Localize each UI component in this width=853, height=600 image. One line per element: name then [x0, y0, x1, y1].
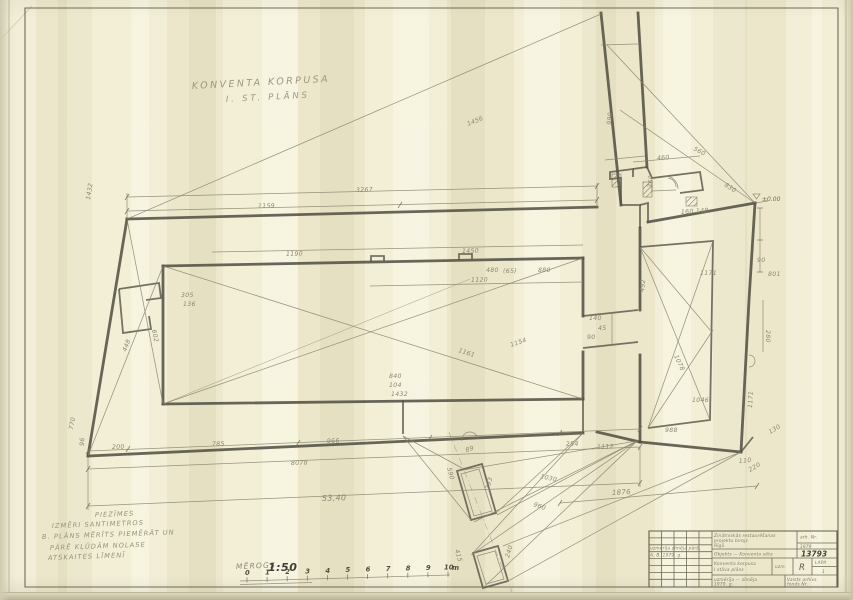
dimension-label: 280 — [764, 330, 771, 343]
ruler-number: 2 — [285, 568, 290, 576]
project-number: 13793 — [801, 550, 827, 559]
scale-unit: m — [452, 564, 459, 572]
sheet-number: 1 — [822, 569, 825, 575]
ruler-number: 4 — [325, 567, 330, 575]
dimension-label: 602 — [150, 329, 159, 343]
dimension-label: 90 — [587, 334, 595, 341]
drawing-line2: I stāva plāns — [714, 567, 744, 573]
note-line1: PIEZĪMES — [95, 509, 135, 519]
dimension-label: 160 — [681, 208, 694, 216]
ruler-number: 9 — [426, 564, 431, 572]
dimension-label: 3267 — [356, 186, 373, 194]
dimension-label: 1154 — [509, 337, 527, 349]
org-line3: Rīgā — [714, 543, 725, 549]
dimension-label: 45 — [598, 325, 606, 332]
dimension-label: 801 — [768, 271, 781, 278]
sig-row1: uzmērīja zīmēja pārb. — [650, 546, 701, 552]
building-walls — [88, 13, 755, 456]
dimension-label: 460 — [657, 154, 670, 162]
dimension-label: 1171 — [700, 270, 717, 277]
dimension-label: 1030 — [540, 473, 558, 484]
dimension-label: 8078 — [291, 459, 308, 467]
dimension-label: 590 — [445, 467, 455, 481]
ruler-number: 8 — [406, 565, 411, 573]
dimension-label: 990 — [606, 112, 614, 125]
border-frame — [25, 8, 838, 587]
ruler-number: 5 — [346, 566, 351, 574]
dimension-label: 966 — [327, 438, 340, 445]
level-mark-label: ±0.00 — [762, 196, 781, 203]
footer-right2: fonds Nr. — [787, 582, 808, 588]
dimension-label: 1112 — [597, 443, 614, 451]
dimension-label: 1456 — [466, 115, 484, 128]
dimension-label: (65) — [503, 268, 517, 275]
dimension-label: 830 — [723, 182, 737, 195]
ruler-number: 6 — [366, 566, 371, 574]
scale-ratio: 1:50 — [268, 561, 297, 574]
dimension-label: 96 — [79, 437, 86, 446]
sheet-label: LAPA — [815, 560, 826, 566]
object-line: Objekts — Konventa sēta — [714, 552, 773, 558]
dimension-label: 480 — [486, 267, 499, 274]
plan-title-line2: I. ST. PLĀNS — [226, 90, 310, 105]
dimension-label: 1161 — [457, 347, 475, 359]
dimension-label: 360 — [647, 175, 655, 188]
dimension-label: 254 — [566, 441, 579, 448]
series-letter: R — [799, 563, 805, 573]
dimension-label: 960 — [532, 501, 546, 512]
dimension-label: 492 — [639, 279, 647, 292]
dimension-label: 53,40 — [322, 493, 347, 503]
stair-detail — [610, 167, 703, 228]
dimension-label: 305 — [181, 292, 194, 299]
dimension-label: 1432 — [85, 182, 95, 200]
dimension-label: 770 — [68, 417, 77, 431]
west-annex — [119, 283, 161, 333]
note-line2: IZMĒRI SANTIMETROS — [52, 518, 144, 530]
ruler-number: 7 — [386, 565, 391, 573]
dimension-label: 1450 — [462, 248, 479, 255]
dimension-labels: 11593267143211901450880(65)4803051369901… — [68, 112, 782, 563]
dimension-label: 148 — [696, 207, 709, 215]
dimension-label: 110 — [739, 457, 752, 465]
dimension-label: 1078 — [672, 354, 686, 372]
footer-left2: 1979. g. — [714, 582, 733, 588]
paper-edge-left — [0, 0, 9, 600]
drawing-line1: Konventa korpusa — [714, 561, 756, 567]
ruler-number: 1 — [265, 569, 270, 577]
scale-bar: MĒROGS 1:50 012345678910 m — [236, 561, 459, 585]
dimension-label: 140 — [589, 315, 602, 322]
dimension-label: 840 — [389, 373, 402, 380]
dimension-label: 200 — [112, 444, 125, 451]
plan-drawing: 11593267143211901450880(65)4803051369901… — [0, 0, 853, 600]
dimension-label: 448 — [121, 338, 132, 352]
org-line1: Zinātniskās restaurēšanas — [713, 532, 776, 539]
dimension-label: 104 — [389, 382, 402, 389]
dimension-label: 136 — [183, 301, 196, 308]
plan-title-line1: KONVENTA KORPUSA — [192, 74, 331, 92]
paper-edge-bottom — [0, 593, 853, 600]
drawing-sheet: 11593267143211901450880(65)4803051369901… — [0, 0, 853, 600]
archive-line1: arh. Nr. — [800, 535, 817, 541]
dimension-label: 880 — [538, 267, 551, 274]
dimension-label: 130 — [768, 423, 783, 435]
dimension-label: 89 — [465, 445, 475, 454]
dimension-label: 988 — [665, 427, 678, 434]
dimension-label: 1190 — [286, 251, 303, 258]
dimension-label: 1171 — [747, 391, 755, 408]
dimension-label: 1046 — [692, 397, 709, 404]
paper-edge-right — [847, 0, 853, 600]
ruler-number: 3 — [305, 567, 310, 575]
dimension-label: 1159 — [258, 203, 275, 210]
dimension-label: 1432 — [391, 391, 408, 398]
dimension-label: 1876 — [612, 488, 632, 497]
title-block: uzmērīja zīmēja pārb. A. B. 1979. g. Zin… — [649, 531, 837, 588]
dimension-label: 1120 — [471, 277, 488, 284]
note-line4: PĀRĒ KĻŪDĀM NOLASE — [50, 540, 146, 552]
dimension-label: 415 — [453, 549, 463, 563]
note-line5: ATSKAITES LĪMENĪ — [47, 550, 126, 562]
ruler-number: 0 — [245, 569, 250, 577]
dimension-label: 240 — [504, 544, 514, 558]
sig-row2: A. B. 1979. g. — [649, 553, 682, 559]
dimension-label: 90 — [757, 257, 765, 264]
dimension-label: 785 — [212, 441, 225, 448]
checked-label: uzm. — [775, 565, 786, 570]
